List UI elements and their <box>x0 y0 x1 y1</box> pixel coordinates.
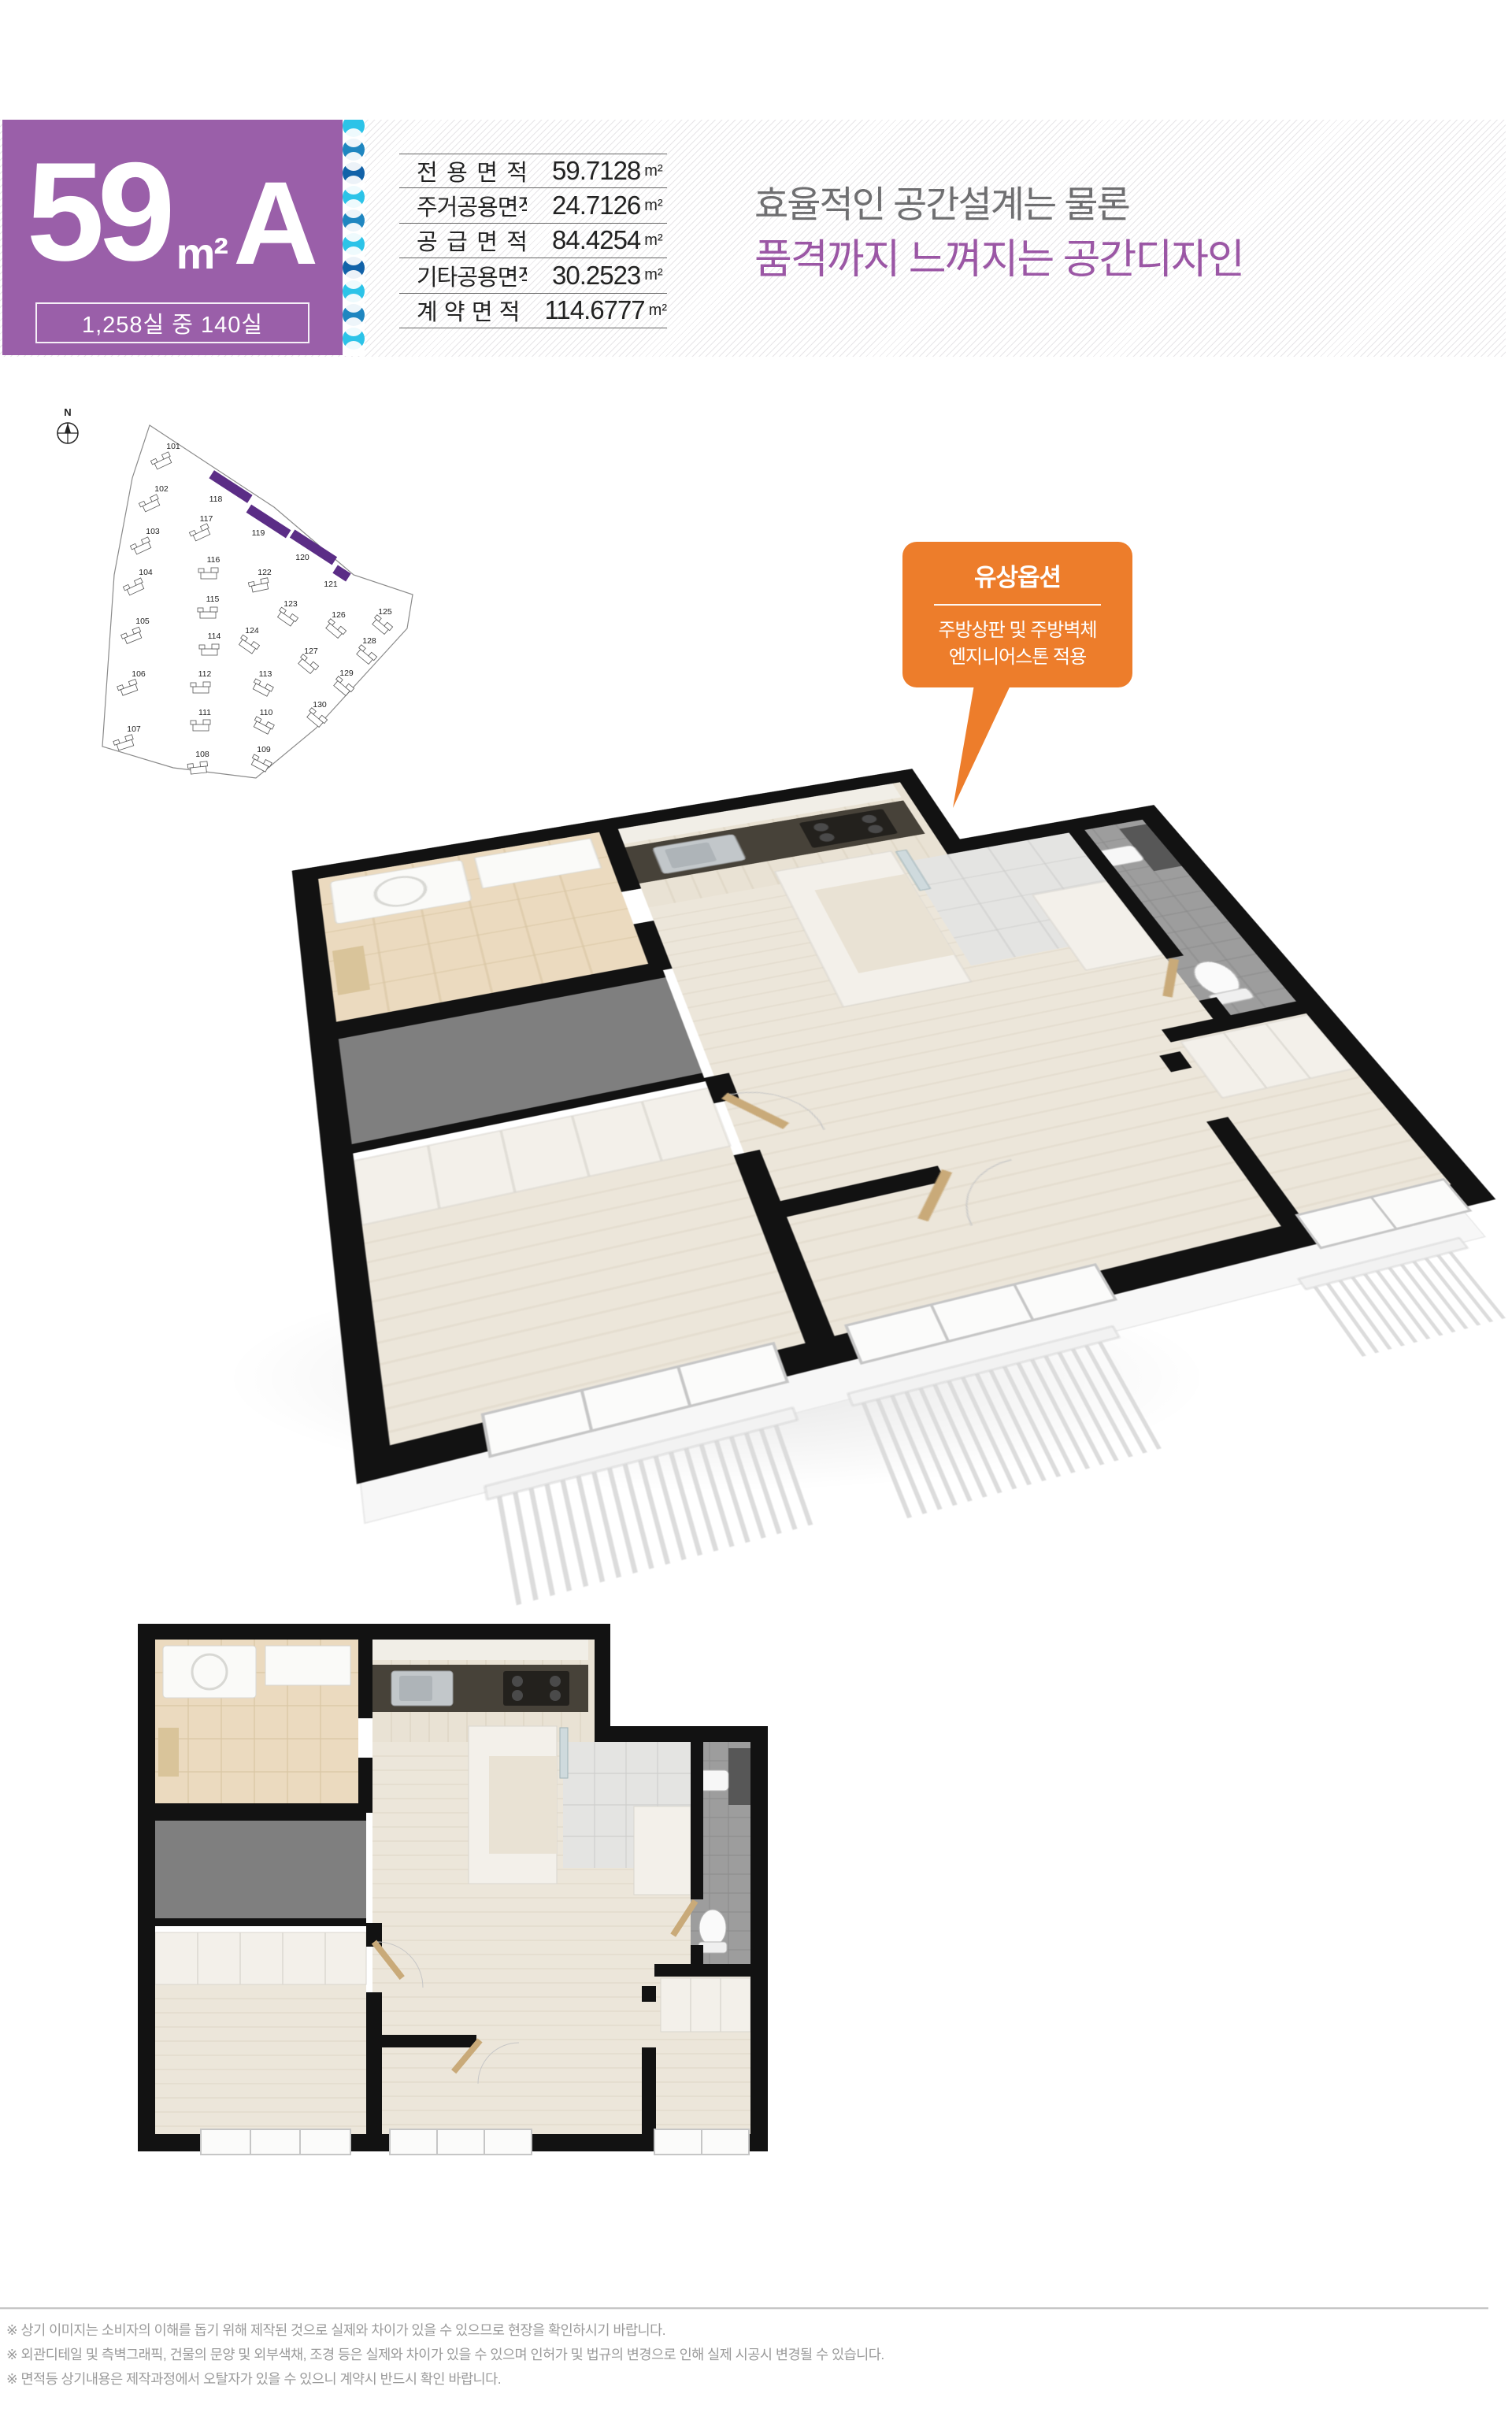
site-building-label: 119 <box>252 528 265 538</box>
site-building-label: 108 <box>195 750 209 759</box>
area-spec-table: 전 용 면 적 59.7128 m² 주거공용면적 24.7126 m² 공 급… <box>399 154 667 328</box>
footer-divider <box>0 2307 1488 2310</box>
site-building-129 <box>332 676 354 697</box>
site-building-label: 127 <box>304 647 318 656</box>
site-building-label: 120 <box>295 553 309 562</box>
table-row: 전 용 면 적 59.7128 m² <box>399 154 667 188</box>
site-building-label: 128 <box>362 636 376 646</box>
area-label: 공 급 면 적 <box>417 224 527 257</box>
compass-icon: N <box>57 406 78 443</box>
callout-body-line2: 엔지니어스톤 적용 <box>909 644 1126 671</box>
site-building-116 <box>198 568 218 579</box>
site-building-108 <box>187 761 208 775</box>
site-building-106 <box>117 679 139 696</box>
floor-plan-2d <box>91 1608 784 2254</box>
site-building-label: 126 <box>332 610 346 620</box>
area-unit: m² <box>644 162 662 180</box>
site-building-label: 112 <box>198 669 212 679</box>
svg-text:N: N <box>64 406 71 418</box>
site-building-110 <box>252 716 275 735</box>
area-value: 114.6777 <box>544 295 644 325</box>
site-building-label: 103 <box>146 527 160 536</box>
site-building-122 <box>248 578 269 593</box>
site-building-label: 124 <box>245 626 259 635</box>
site-plan-map: N 10110210310410510610710810911011111211… <box>39 403 433 801</box>
headline-line1: 효율적인 공간설계는 물론 <box>754 186 1243 223</box>
site-building-label: 113 <box>259 669 272 679</box>
site-building-111 <box>191 720 210 731</box>
site-building-109 <box>250 754 272 773</box>
site-building-label: 118 <box>209 495 223 504</box>
paid-option-callout: 유상옵션 주방상판 및 주방벽체 엔지니어스톤 적용 <box>902 542 1132 687</box>
table-row: 주거공용면적 24.7126 m² <box>399 188 667 223</box>
site-building-label: 101 <box>166 442 180 451</box>
site-building-115 <box>198 607 217 618</box>
disclaimer-line: ※ 상기 이미지는 소비자의 이해를 돕기 위해 제작된 것으로 실제와 차이가… <box>6 2318 884 2343</box>
area-unit: m² <box>644 197 662 215</box>
area-label: 계 약 면 적 <box>417 294 519 327</box>
area-unit: m² <box>644 266 662 284</box>
unit-size: 59 m² A <box>27 142 319 282</box>
site-building-label: 106 <box>132 669 146 679</box>
site-building-113 <box>251 678 274 697</box>
site-building-label: 125 <box>378 607 392 617</box>
site-building-label: 117 <box>200 514 213 524</box>
wave-pattern-strip <box>343 120 365 356</box>
unit-size-unit: m² <box>176 232 227 276</box>
disclaimer-text: ※ 상기 이미지는 소비자의 이해를 돕기 위해 제작된 것으로 실제와 차이가… <box>6 2318 884 2392</box>
area-value: 30.2523 <box>552 261 640 291</box>
brochure-page: { "theme": { "purple": "#9a5fa9", "purpl… <box>0 0 1512 2427</box>
area-value: 59.7128 <box>552 156 640 186</box>
site-building-102 <box>139 495 161 513</box>
site-building-123 <box>276 606 298 627</box>
area-unit: m² <box>644 232 662 250</box>
site-building-128 <box>354 644 376 665</box>
area-label: 기타공용면적 <box>417 259 527 292</box>
site-building-127 <box>296 654 318 675</box>
site-building-label: 105 <box>135 617 150 626</box>
site-building-105 <box>120 627 143 644</box>
site-building-label: 104 <box>139 568 153 577</box>
site-building-label: 107 <box>127 724 141 734</box>
site-building-112 <box>191 682 210 693</box>
callout-separator <box>934 604 1101 606</box>
site-building-101 <box>150 452 173 470</box>
area-value: 84.4254 <box>552 225 640 255</box>
site-building-label: 123 <box>283 599 298 609</box>
building-markers: 1011021031041051061071081091101111121131… <box>113 442 393 774</box>
disclaimer-line: ※ 면적등 상기내용은 제작과정에서 오탈자가 있을 수 있으니 계약시 반드시… <box>6 2367 884 2392</box>
table-row: 기타공용면적 30.2523 m² <box>399 258 667 293</box>
site-building-label: 109 <box>257 745 271 754</box>
site-building-label: 121 <box>324 580 338 589</box>
unit-type-badge: 59 m² A 1,258실 중 140실 <box>2 120 343 355</box>
site-building-103 <box>130 537 153 555</box>
site-building-label: 116 <box>207 555 220 565</box>
table-row: 공 급 면 적 84.4254 m² <box>399 224 667 258</box>
site-building-label: 130 <box>313 700 327 710</box>
callout-title: 유상옵션 <box>909 558 1126 593</box>
table-row: 계 약 면 적 114.6777 m² <box>399 294 667 328</box>
site-building-label: 114 <box>208 632 221 641</box>
area-label: 주거공용면적 <box>417 189 527 222</box>
unit-count-box: 1,258실 중 140실 <box>35 302 309 343</box>
unit-size-number: 59 <box>27 142 169 282</box>
site-building-117 <box>189 524 212 542</box>
unit-type-letter: A <box>233 164 318 282</box>
callout-pointer <box>929 680 1039 810</box>
site-building-114 <box>199 644 219 655</box>
site-building-125 <box>370 614 392 635</box>
site-building-label: 129 <box>339 669 354 678</box>
disclaimer-line: ※ 외관디테일 및 측벽그래픽, 건물의 문양 및 외부색채, 조경 등은 실제… <box>6 2343 884 2367</box>
site-building-label: 122 <box>258 568 272 577</box>
site-building-label: 115 <box>206 595 220 604</box>
site-building-label: 102 <box>154 484 169 494</box>
site-building-label: 111 <box>198 708 211 717</box>
page-title: 효율적인 공간설계는 물론 품격까지 느껴지는 공간디자인 <box>754 186 1243 280</box>
site-building-104 <box>123 578 146 596</box>
area-unit: m² <box>649 302 667 320</box>
callout-body-line1: 주방상판 및 주방벽체 <box>909 617 1126 644</box>
site-building-107 <box>113 735 135 751</box>
site-building-124 <box>237 634 260 654</box>
site-building-label: 110 <box>260 708 273 717</box>
headline-line2: 품격까지 느껴지는 공간디자인 <box>754 239 1243 280</box>
area-label: 전 용 면 적 <box>417 154 527 187</box>
site-building-130 <box>305 707 327 728</box>
site-building-126 <box>324 618 346 639</box>
area-value: 24.7126 <box>552 191 640 220</box>
